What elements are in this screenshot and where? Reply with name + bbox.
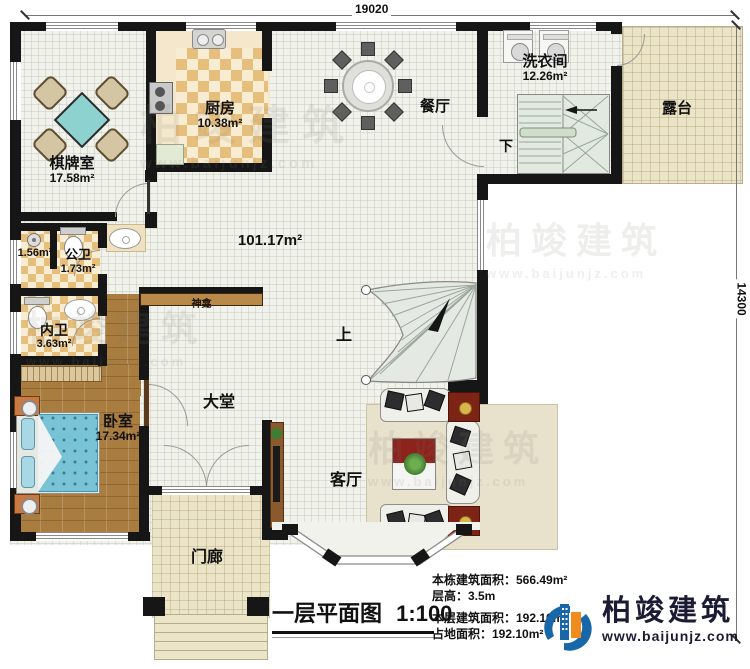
stairs-up-label: 上 — [332, 327, 356, 345]
room-label-lobby: 大堂 — [194, 394, 244, 412]
stairs-down-label: 下 — [496, 138, 516, 154]
pillow — [21, 456, 35, 488]
wall-right-upper-b — [611, 66, 622, 184]
porch-column-right — [247, 597, 269, 616]
bay-window — [258, 522, 492, 576]
kitchen-sink — [192, 29, 226, 49]
drawing-title: 一层平面图 1:100 — [272, 596, 452, 638]
end-table — [448, 392, 480, 422]
window-left-1 — [10, 62, 21, 120]
sofa-cushion — [384, 390, 404, 410]
wall-bath-right-a — [98, 223, 107, 248]
wall-chess-bottom — [10, 212, 117, 221]
room-label-great-room: 101.17m² — [222, 232, 318, 249]
room-label-living: 客厅 — [320, 472, 372, 490]
logo-url: www.baijunjz.com — [602, 628, 739, 644]
pillow — [21, 418, 35, 450]
dimension-line-right — [736, 25, 737, 640]
porch-steps — [154, 614, 268, 660]
chair — [398, 79, 412, 93]
title-underline — [272, 631, 434, 634]
wall-right-upper-a — [611, 22, 622, 34]
room-label-bedroom: 卧室 17.34m² — [86, 413, 150, 444]
company-logo: 柏竣建筑 www.baijunjz.com — [540, 596, 739, 656]
room-label-shower: 1.56m² — [14, 247, 56, 260]
window-left-3 — [10, 312, 21, 354]
stat-building-total: 本栋建筑面积：566.49m² — [432, 572, 567, 588]
window-bedroom — [36, 532, 128, 541]
stairs-down — [517, 94, 610, 174]
wall-bath-top — [10, 223, 106, 231]
room-label-dining: 餐厅 — [404, 98, 466, 115]
nightstand — [14, 494, 40, 514]
logo-icon — [540, 596, 594, 656]
watermark: 柏竣建筑 www.baijunjz.com — [368, 420, 548, 489]
tv — [273, 446, 280, 502]
window-top-1 — [46, 22, 118, 31]
wall-dining-laundry — [477, 27, 488, 117]
toilet-tank — [60, 227, 86, 235]
porch-column-left — [143, 597, 165, 616]
window-top-3 — [336, 22, 456, 31]
dimension-top: 19020 — [352, 2, 391, 16]
room-label-inner-bath: 内卫 3.63m² — [26, 322, 82, 351]
room-label-porch: 门廊 — [180, 549, 234, 567]
chair — [361, 116, 375, 130]
nightstand — [14, 396, 40, 416]
dimension-right: 14300 — [735, 279, 749, 318]
room-label-chess: 棋牌室 17.58m² — [26, 155, 118, 186]
room-label-public-bath: 公卫 1.73m² — [56, 248, 100, 276]
vanity-sink — [109, 228, 141, 249]
wall-lobby-bottom-a — [149, 486, 163, 495]
chair — [324, 79, 338, 93]
wall-laundry-bottom — [480, 174, 622, 184]
room-label-kitchen: 厨房 10.38m² — [178, 100, 262, 131]
chair — [361, 42, 375, 56]
shrine: 神龛 — [140, 293, 263, 306]
watermark: 柏竣建筑 www.baijunjz.com — [486, 212, 666, 281]
floor-plan: 柏竣建筑 www.baijunjz.com 柏竣建筑 www.baijunjz.… — [0, 0, 750, 669]
room-label-terrace: 露台 — [650, 100, 704, 117]
wall-bath-mid — [10, 288, 107, 296]
stairs-up — [356, 278, 480, 388]
title-text: 一层平面图 — [272, 601, 382, 626]
wall-kitchen-right-a — [262, 27, 272, 71]
entry-door-sill — [162, 486, 250, 495]
shower-head — [27, 233, 41, 247]
room-label-laundry: 洗衣间 12.26m² — [502, 53, 588, 84]
logo-name: 柏竣建筑 — [602, 596, 739, 628]
plant — [271, 428, 282, 439]
title-underline-thin — [272, 637, 434, 638]
sofa-cushion — [405, 393, 424, 412]
door-chess-leaf — [147, 180, 150, 214]
